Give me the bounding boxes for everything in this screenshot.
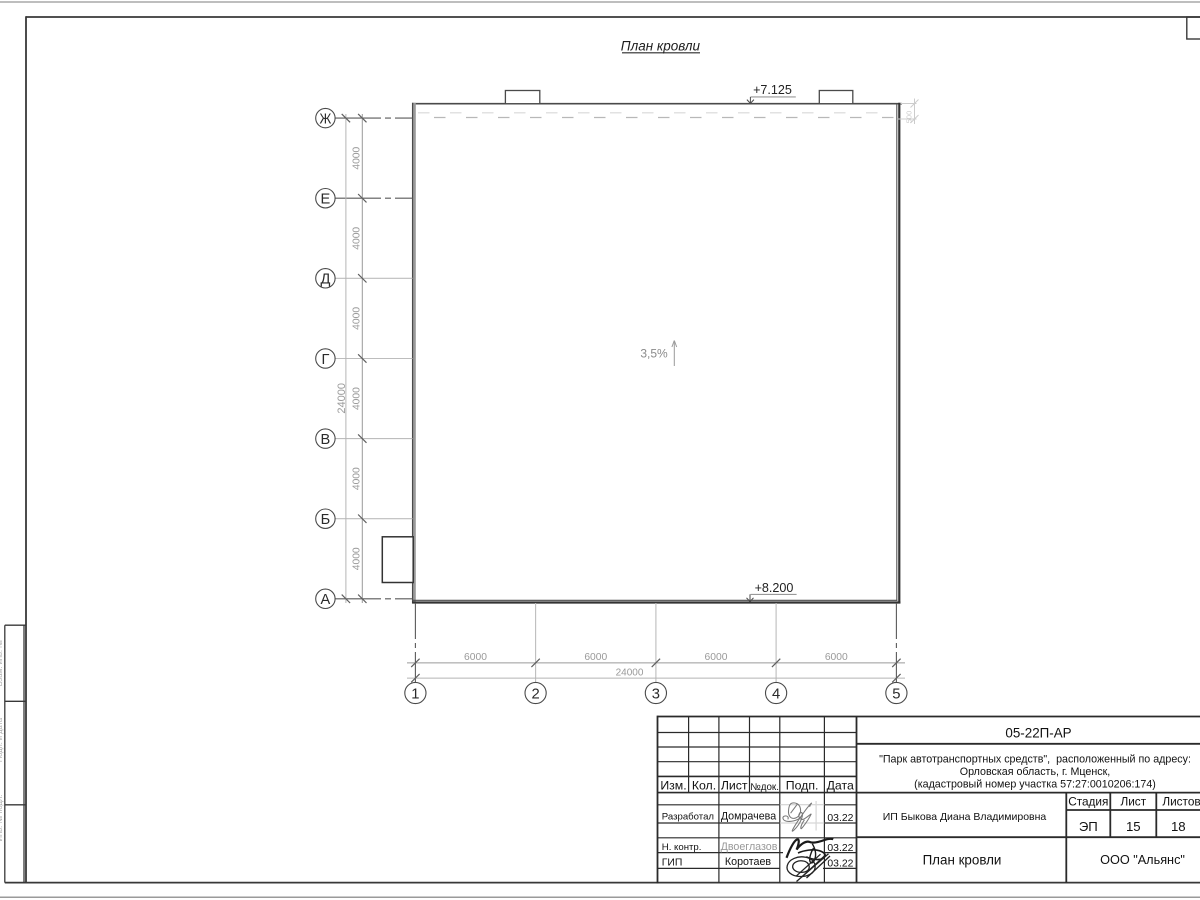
- svg-text:ИП Быкова Диана Владимировна: ИП Быкова Диана Владимировна: [883, 811, 1047, 823]
- svg-text:6000: 6000: [584, 652, 607, 663]
- svg-text:Е: Е: [321, 192, 331, 208]
- svg-text:+7.125: +7.125: [753, 83, 792, 97]
- svg-text:Двоеглазов: Двоеглазов: [721, 841, 778, 853]
- svg-text:4000: 4000: [351, 467, 362, 490]
- svg-text:Г: Г: [321, 352, 329, 368]
- svg-text:В: В: [321, 432, 331, 448]
- svg-text:5: 5: [892, 686, 900, 702]
- svg-text:500: 500: [905, 111, 914, 124]
- svg-text:3,5%: 3,5%: [640, 347, 668, 361]
- svg-text:6000: 6000: [705, 652, 728, 663]
- svg-text:03.22: 03.22: [827, 858, 853, 869]
- svg-text:Орловская область, г. Мценск,: Орловская область, г. Мценск,: [960, 766, 1111, 778]
- svg-text:План кровли: План кровли: [923, 853, 1002, 868]
- svg-text:6000: 6000: [464, 652, 487, 663]
- svg-text:Изм.: Изм.: [660, 779, 686, 793]
- svg-text:(кадастровый номер участка 57:: (кадастровый номер участка 57:27:0010206…: [914, 779, 1156, 791]
- svg-text:А: А: [321, 592, 331, 608]
- svg-text:2: 2: [531, 686, 539, 702]
- svg-text:Инв. № подл.: Инв. № подл.: [0, 795, 4, 842]
- svg-text:ГИП: ГИП: [662, 858, 683, 869]
- svg-text:Лист: Лист: [721, 779, 748, 793]
- svg-text:6000: 6000: [825, 652, 848, 663]
- svg-text:1: 1: [411, 686, 419, 702]
- svg-text:4: 4: [772, 686, 780, 702]
- svg-text:4000: 4000: [351, 387, 362, 410]
- svg-text:№док.: №док.: [750, 782, 779, 793]
- svg-text:Листов: Листов: [1162, 795, 1200, 809]
- svg-text:"Парк автотранспортных средств: "Парк автотранспортных средств", располо…: [879, 754, 1191, 766]
- svg-text:Д: Д: [320, 272, 330, 288]
- svg-text:4000: 4000: [351, 547, 362, 570]
- svg-text:Кол.: Кол.: [692, 779, 716, 793]
- svg-text:Подп. и дата: Подп. и дата: [0, 717, 4, 762]
- svg-text:Н. контр.: Н. контр.: [662, 842, 702, 853]
- svg-text:3: 3: [652, 686, 660, 702]
- svg-text:Коротаев: Коротаев: [725, 856, 771, 868]
- svg-text:05-22П-АР: 05-22П-АР: [1005, 725, 1071, 740]
- svg-text:ЭП: ЭП: [1079, 819, 1098, 834]
- svg-text:4000: 4000: [351, 307, 362, 330]
- svg-text:Взам. инв. №: Взам. инв. №: [0, 640, 4, 686]
- svg-text:Дата: Дата: [827, 779, 854, 793]
- svg-text:4000: 4000: [351, 227, 362, 250]
- svg-text:18: 18: [1171, 819, 1186, 834]
- svg-text:Подп.: Подп.: [786, 779, 819, 793]
- svg-text:Стадия: Стадия: [1068, 795, 1108, 809]
- svg-text:Домрачева: Домрачева: [721, 810, 776, 822]
- svg-text:Б: Б: [321, 512, 331, 528]
- svg-text:15: 15: [1126, 819, 1141, 834]
- svg-text:Лист: Лист: [1120, 795, 1146, 809]
- svg-text:03.22: 03.22: [827, 813, 853, 824]
- svg-text:24000: 24000: [616, 667, 644, 678]
- svg-text:03.22: 03.22: [827, 843, 853, 854]
- svg-text:ООО "Альянс": ООО "Альянс": [1100, 853, 1185, 867]
- svg-text:4000: 4000: [351, 146, 362, 169]
- svg-text:План кровли: План кровли: [621, 39, 701, 54]
- svg-text:+8.200: +8.200: [755, 581, 794, 595]
- svg-text:Разработал: Разработал: [662, 812, 714, 823]
- svg-text:24000: 24000: [336, 383, 348, 414]
- svg-text:Ж: Ж: [320, 111, 332, 127]
